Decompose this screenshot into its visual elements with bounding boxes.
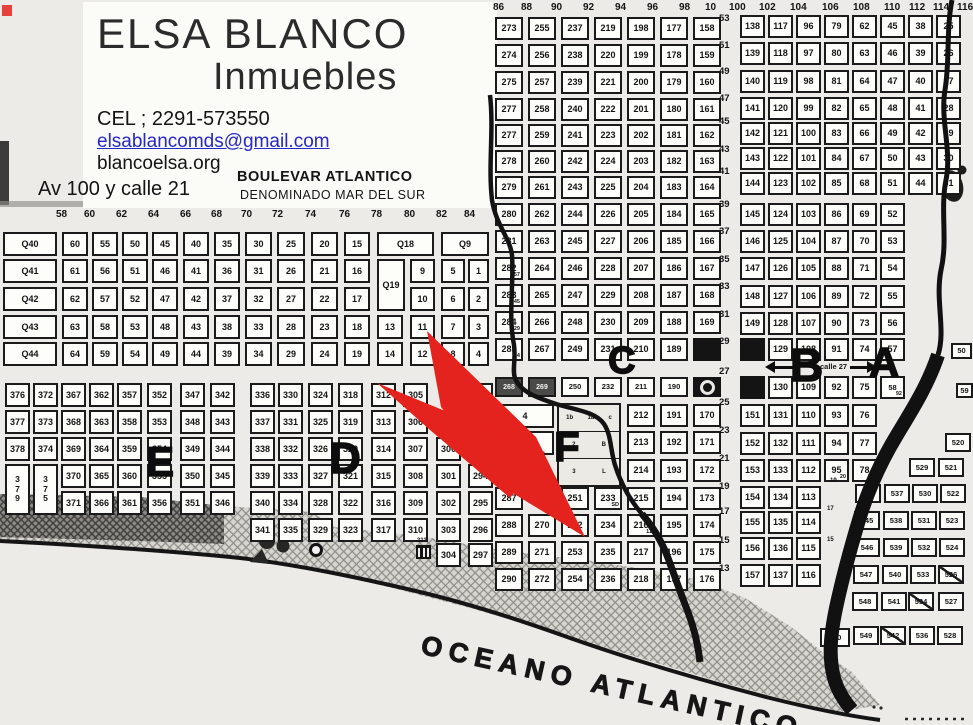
district-letter-A: A bbox=[869, 342, 899, 384]
calle-27-label: calle 27 bbox=[820, 362, 847, 371]
district-letter-D: D bbox=[329, 437, 361, 481]
district-letter-F: F bbox=[554, 426, 580, 468]
road-arrow-right-icon bbox=[850, 366, 868, 369]
district-letter-B: B bbox=[790, 342, 823, 388]
district-letter-C: C bbox=[608, 342, 635, 380]
district-letter-E: E bbox=[146, 441, 174, 483]
map-canvas: ELSA BLANCO Inmuebles CEL ; 2291-573550 … bbox=[0, 0, 973, 725]
